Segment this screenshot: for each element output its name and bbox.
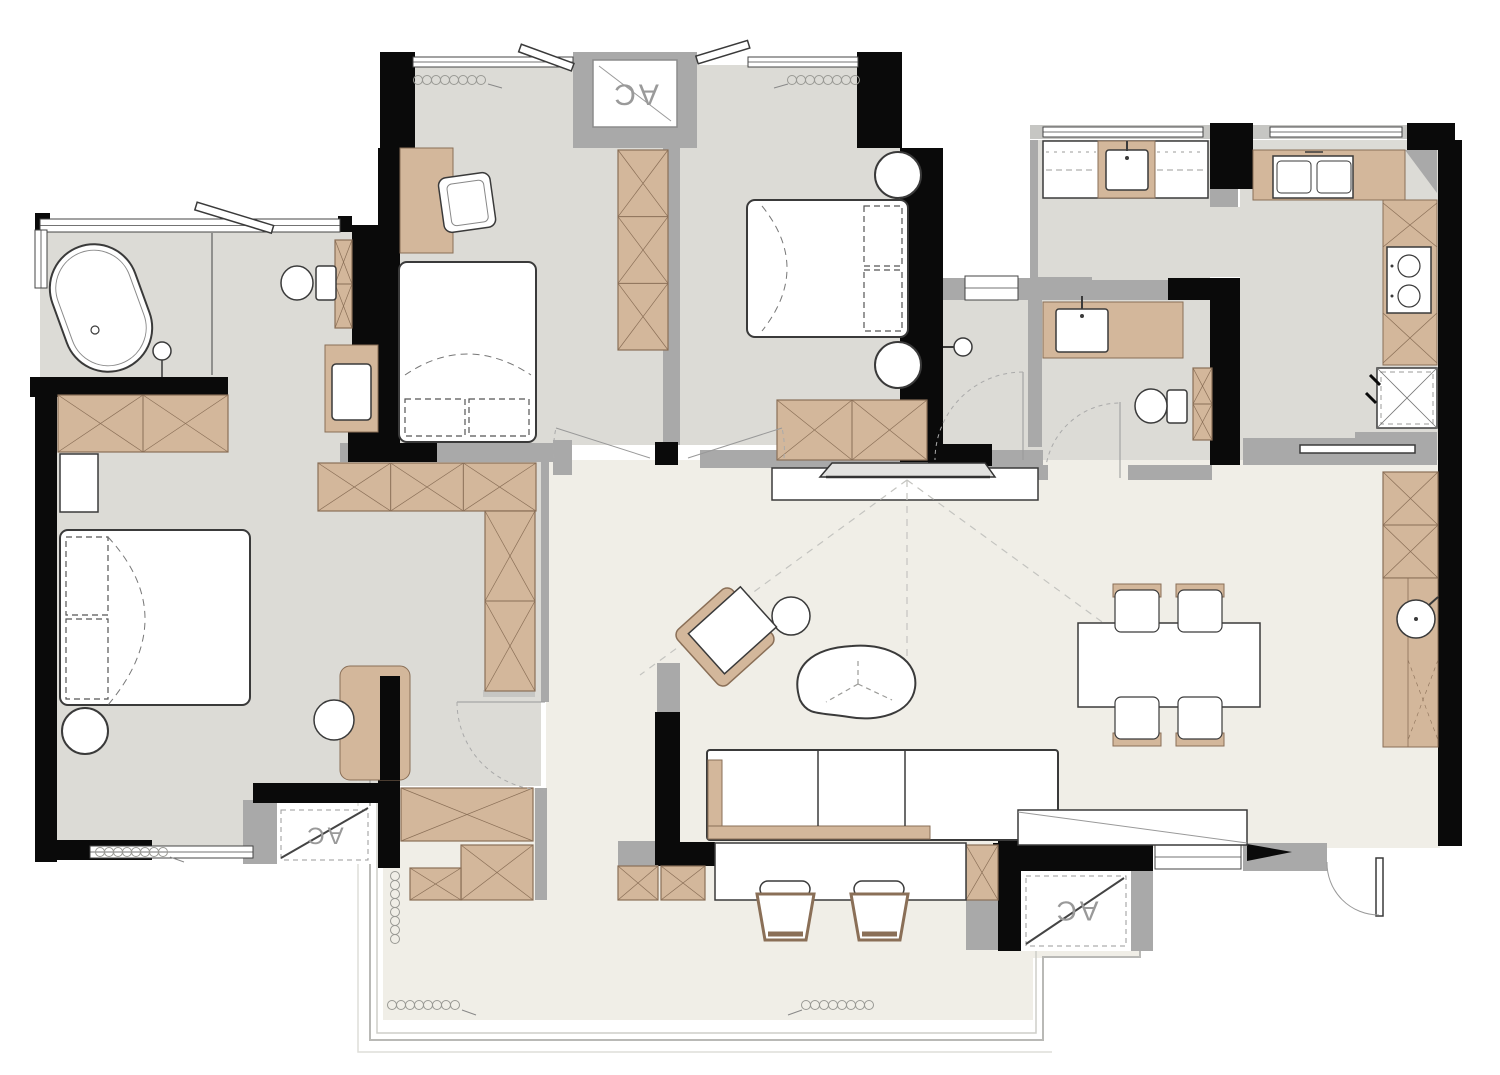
dining-chair4 xyxy=(1178,697,1222,739)
floor-plan: ACACAC xyxy=(0,0,1500,1075)
cabinet-tall-upper xyxy=(1383,472,1438,578)
bath2-faucet-dot xyxy=(1080,314,1084,318)
window-entry-opening xyxy=(1155,845,1241,869)
cabinet-bath1-strip xyxy=(335,240,352,328)
bar-counter xyxy=(715,843,966,900)
bed2-pillow1 xyxy=(405,399,465,436)
ac-label-balcony: AC xyxy=(1054,896,1099,927)
wall-balcony-cap xyxy=(618,841,658,866)
burner1-dot xyxy=(1391,265,1394,268)
wall-master-left xyxy=(35,377,57,862)
pillar-cap xyxy=(657,663,680,713)
bedm-pillow1 xyxy=(66,537,108,615)
wardrobe-bedroom2 xyxy=(618,150,668,350)
wall-top-left-bedroom2 xyxy=(380,52,415,148)
tv xyxy=(820,463,995,477)
dining-chair1 xyxy=(1115,590,1159,632)
cabinet-balcony-right xyxy=(966,845,998,900)
pantry-basin-dot xyxy=(1125,156,1129,160)
pantry-kitchen-stub xyxy=(1210,187,1238,207)
wall-balcony-right-post xyxy=(998,841,1021,951)
wall-bath2-top-right xyxy=(1168,278,1240,300)
window-kitchen-2 xyxy=(1270,127,1402,137)
wall-master-band-black xyxy=(380,443,437,462)
open-sash-bedroom3 xyxy=(696,40,750,63)
wall-ac3-right xyxy=(1131,871,1153,951)
floor-bedroom2-window-strip xyxy=(413,65,575,150)
desk-master-wall-overlay xyxy=(380,676,400,780)
ac-label-master: AC xyxy=(304,822,343,849)
shelf-master xyxy=(60,454,98,512)
bath2-window-cap-left xyxy=(943,278,965,300)
window-bathroom1 xyxy=(40,219,340,232)
kitchen-sink-basin1 xyxy=(1277,161,1311,193)
wall-balcony-black xyxy=(658,842,715,866)
cabinet-balcony-center-2 xyxy=(661,866,705,900)
wall-bathroom2-left xyxy=(1028,295,1042,447)
pantry-left-edge xyxy=(1030,140,1038,290)
window-kitchen-1 xyxy=(1043,127,1203,137)
nightstand-master xyxy=(62,708,108,754)
wall-bath2-right xyxy=(1210,300,1240,465)
side-table xyxy=(772,597,810,635)
cabinet-balcony-center-1 xyxy=(618,866,658,900)
sink-bathroom1 xyxy=(332,364,371,420)
toilet1-bowl xyxy=(281,266,313,300)
wall-ac2-top xyxy=(253,783,380,803)
floor-pantry-door-gap xyxy=(1210,207,1240,277)
dining-table xyxy=(1078,623,1260,707)
floor-plan-canvas: ACACAC xyxy=(0,0,1500,1075)
wall-bath1-divider xyxy=(352,225,378,347)
dining-chair3 xyxy=(1115,697,1159,739)
door-entrance-leaf xyxy=(1376,858,1383,916)
window-bathroom2 xyxy=(965,276,1018,300)
window-master xyxy=(90,846,253,858)
nightstand-bedroom3-b xyxy=(875,342,921,388)
cabinet-bath2-strip xyxy=(1193,368,1212,440)
wall-balcony-strip xyxy=(535,788,547,900)
wall-bathroom2-bottom-right xyxy=(1128,465,1212,480)
shower-head-hallway xyxy=(954,338,972,356)
toilet1-tank xyxy=(316,266,336,300)
cabinet-balcony-left-2 xyxy=(461,845,533,900)
floor-bedroom3-window-strip xyxy=(697,65,859,150)
wall-top-right-bedroom3 xyxy=(857,52,902,148)
window-left-vertical xyxy=(35,230,47,288)
cabinet-balcony-left-1 xyxy=(401,788,533,841)
kitchen-sink-basin2 xyxy=(1317,161,1351,193)
tall-cabinet-basin-dot xyxy=(1414,617,1418,621)
wardrobe-master-L-horizontal xyxy=(318,463,536,511)
bedm-pillow2 xyxy=(66,619,108,699)
window-bedroom3 xyxy=(748,57,858,67)
pillar-between-doors xyxy=(655,442,678,465)
coffee-table xyxy=(797,646,915,719)
floor-master-bottom-left xyxy=(55,785,253,847)
wall-corner-piece xyxy=(553,440,572,475)
toilet2-bowl xyxy=(1135,389,1167,423)
bed3-pillow2 xyxy=(864,270,902,331)
stove xyxy=(1387,247,1431,313)
sofa-base-band xyxy=(708,826,930,839)
ac-label-top: AC xyxy=(611,78,659,111)
bed3-pillow1 xyxy=(864,206,902,266)
wall-bath1-counter xyxy=(30,377,228,397)
cabinet-balcony-left-3 xyxy=(410,868,461,900)
entry-shelf-2 xyxy=(1355,452,1385,465)
wall-right-outer xyxy=(1438,140,1462,846)
kitchen-slider-door xyxy=(1300,445,1415,453)
bath1-faucet xyxy=(153,342,171,360)
wall-balcony-right-gray xyxy=(966,900,998,950)
chair-master-desk xyxy=(314,700,354,740)
wardrobe-bedroom3 xyxy=(777,400,927,460)
door-entrance-arc xyxy=(1327,862,1379,915)
bed2-pillow2 xyxy=(469,399,529,436)
dining-chair2 xyxy=(1178,590,1222,632)
bath2-window-cap-right xyxy=(1018,278,1043,300)
burner2-dot xyxy=(1391,295,1394,298)
wardrobe-master-top xyxy=(58,395,228,452)
nightstand-bedroom3-a xyxy=(875,152,921,198)
wardrobe-master-L-vertical xyxy=(485,511,535,691)
wall-pantry-top xyxy=(1210,123,1253,189)
toilet2-tank xyxy=(1167,390,1187,423)
wall-bedroom2-left xyxy=(378,148,400,445)
wall-master-living xyxy=(541,462,549,702)
